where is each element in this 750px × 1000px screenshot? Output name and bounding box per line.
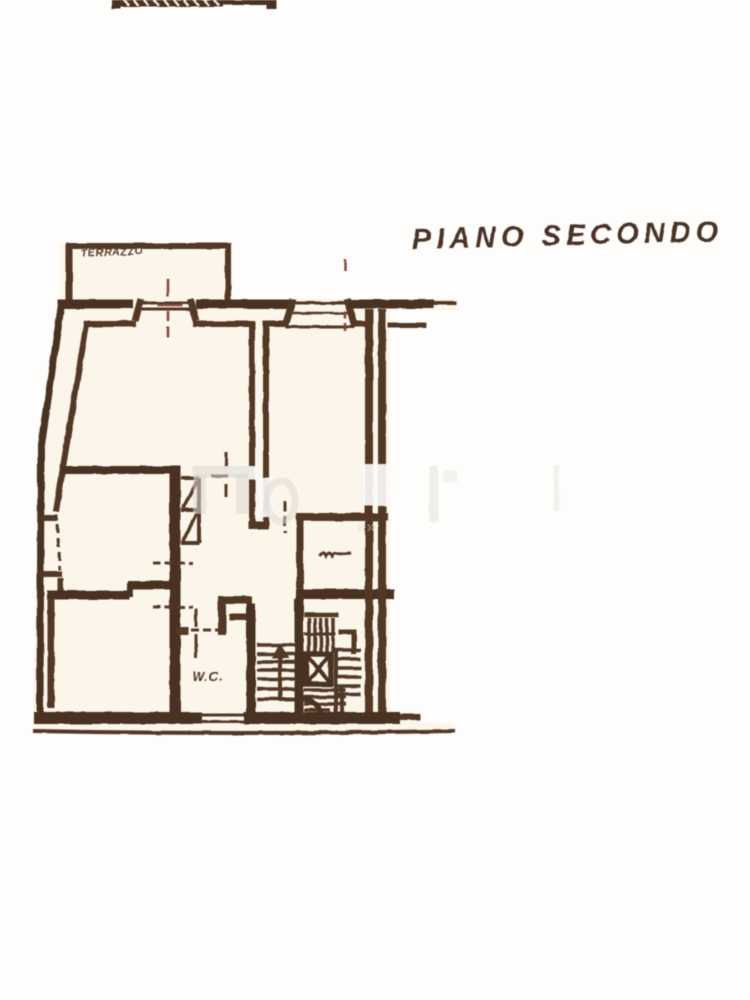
svg-text:W.C.: W.C.: [192, 669, 224, 684]
svg-text:»»: »»: [357, 517, 376, 536]
